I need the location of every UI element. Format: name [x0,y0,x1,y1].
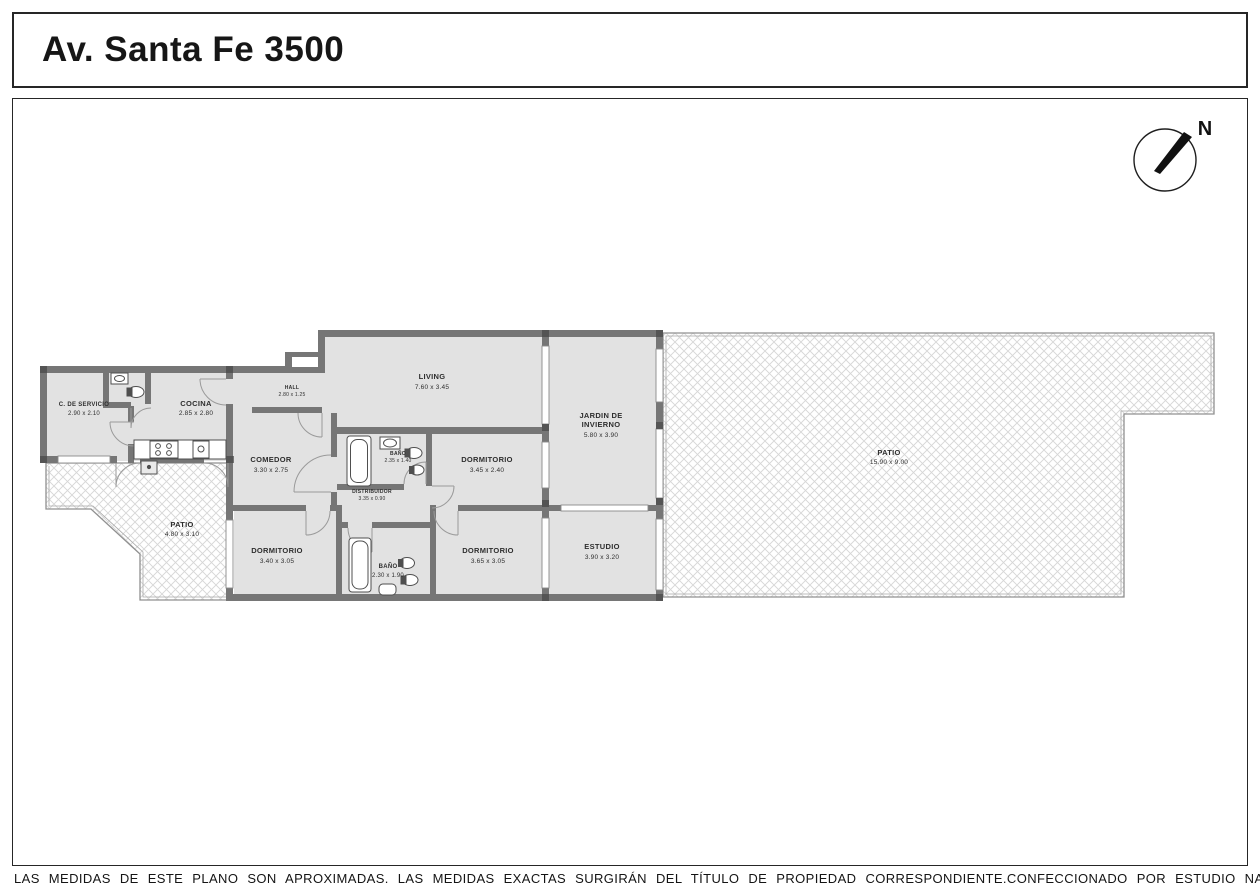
patio-large-dims: 15.90 x 9.00 [870,459,908,466]
dormitorio-2-dims: 3.40 x 3.05 [260,558,295,565]
floor-plan-page: Av. Santa Fe 3500 N [0,0,1260,888]
living-label: LIVING [419,372,446,381]
bano-1-label: BAÑO [390,450,406,457]
bano-1-dims: 2.35 x 1.40 [385,458,412,464]
cocina-label: COCINA [180,399,212,408]
hall-dims: 2.80 x 1.25 [279,392,306,398]
bano-2-dims: 2.30 x 1.90 [372,573,404,579]
jardin-dims: 5.80 x 3.90 [584,432,619,439]
patio-small-label: PATIO [170,520,193,529]
patio-large [663,333,1214,597]
servicio-dims: 2.90 x 2.10 [68,411,100,417]
patio-large-label: PATIO [877,448,900,457]
disclaimer-text: LAS MEDIDAS DE ESTE PLANO SON APROXIMADA… [14,871,1007,886]
compass-needle-icon [1154,132,1192,174]
jardin-label-line2: INVIERNO [582,420,621,429]
distribuidor-dims: 3.35 x 0.90 [359,496,386,502]
estudio-dims: 3.90 x 3.20 [585,554,620,561]
kitchen-counter [134,440,226,459]
dormitorio-1-label: DORMITORIO [461,455,513,464]
stove-icon [150,441,178,458]
living-dims: 7.60 x 3.45 [415,384,450,391]
comedor-dims: 3.30 x 2.75 [254,467,289,474]
entry-step [292,357,318,367]
patio-small-dims: 4.80 x 3.10 [165,531,200,538]
cocina-dims: 2.85 x 2.80 [179,410,214,417]
comedor-label: COMEDOR [250,455,292,464]
credit-text: CONFECCIONADO POR ESTUDIO NARTEX [1007,871,1260,886]
hall-label: HALL [285,385,300,391]
estudio-label: ESTUDIO [584,542,619,551]
jardin-label-line1: JARDIN DE [579,411,622,420]
servicio-label: C. DE SERVICIO [59,402,109,408]
footer: LAS MEDIDAS DE ESTE PLANO SON APROXIMADA… [14,871,1246,886]
distribuidor-label: DISTRIBUIDOR [352,489,392,495]
basin-2-icon [379,584,396,595]
dormitorio-1-dims: 3.45 x 2.40 [470,467,505,474]
bano-2-label: BAÑO [379,563,398,570]
patio-small [46,463,230,600]
dormitorio-3-label: DORMITORIO [462,546,514,555]
dormitorio-3-dims: 3.65 x 3.05 [471,558,506,565]
compass-north-label: N [1198,118,1212,140]
compass: N [1134,118,1212,191]
dormitorio-2-label: DORMITORIO [251,546,303,555]
floor-plan-drawing: N [0,0,1260,888]
